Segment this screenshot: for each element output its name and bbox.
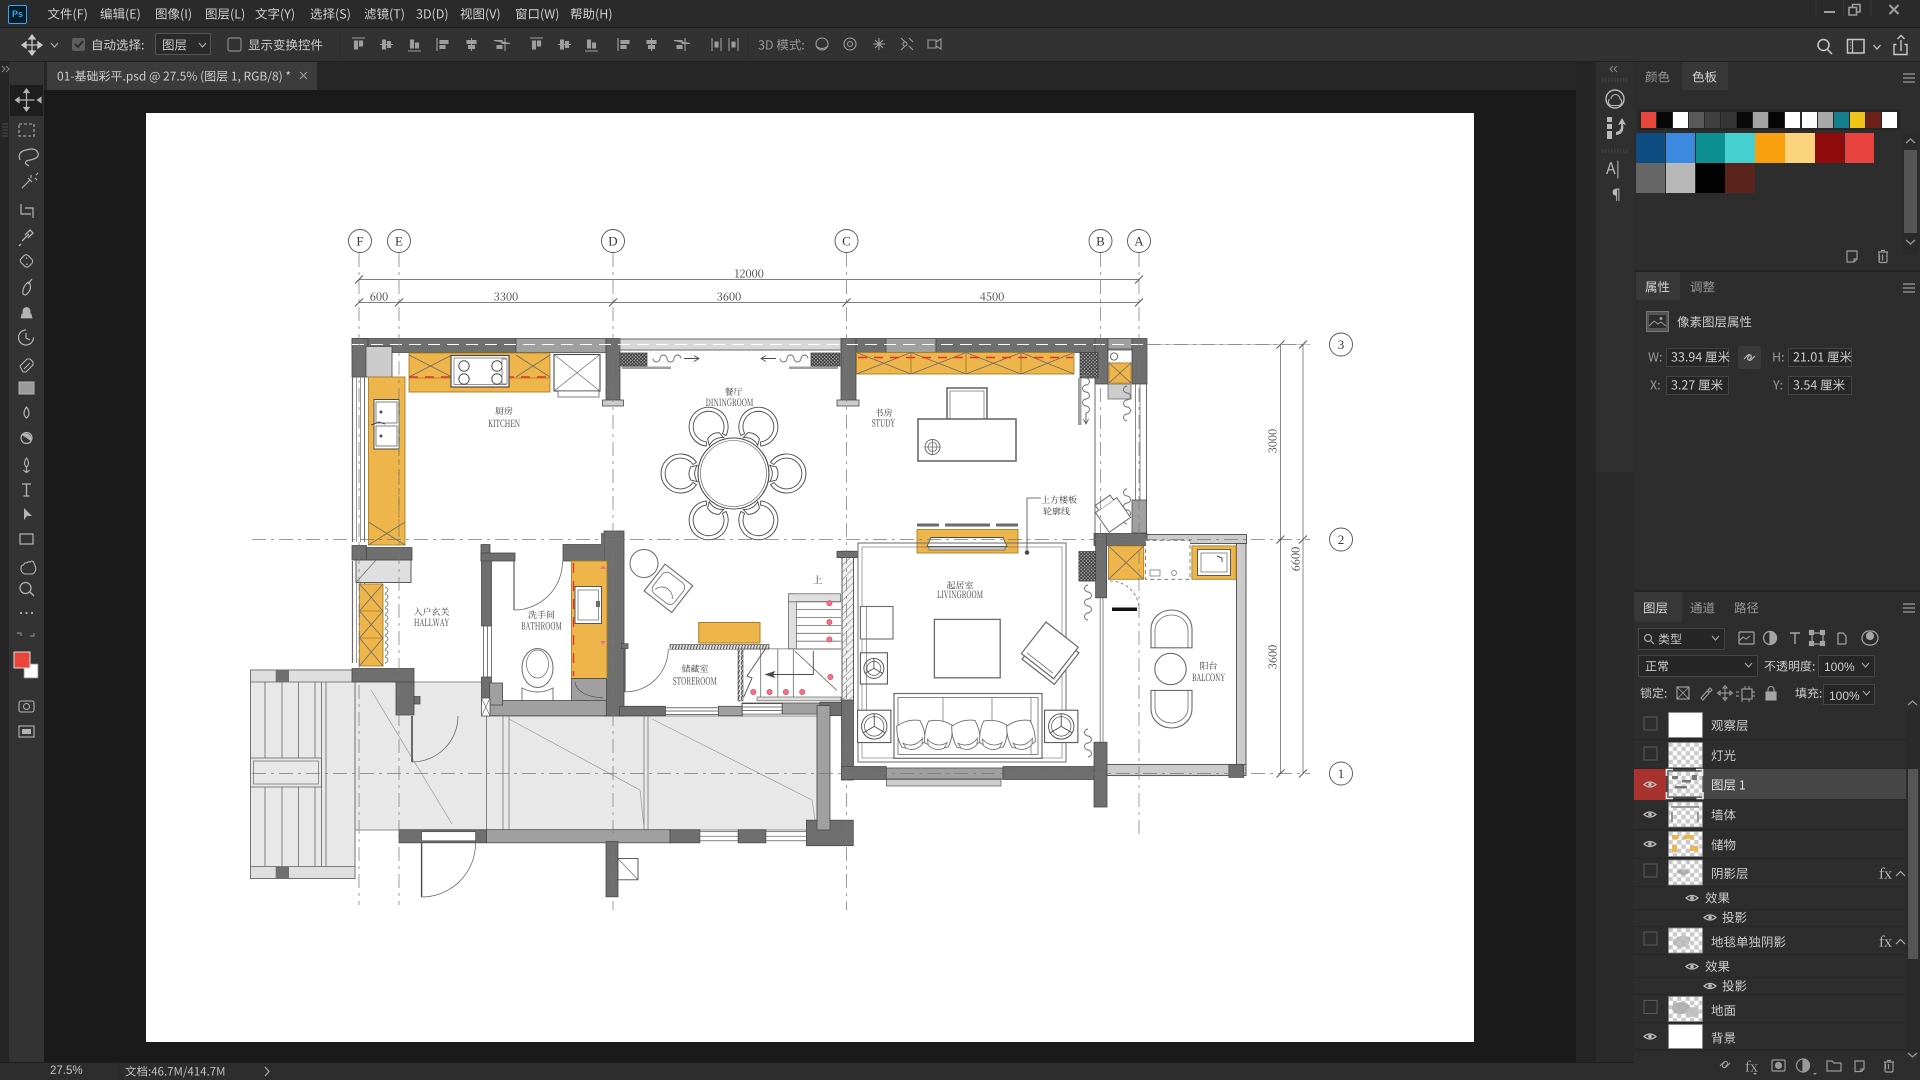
svg-text:D: D bbox=[608, 234, 617, 249]
svg-text:2: 2 bbox=[1338, 532, 1345, 547]
svg-text:1: 1 bbox=[1338, 766, 1345, 781]
svg-text:3: 3 bbox=[1338, 337, 1345, 352]
svg-text:F: F bbox=[356, 234, 363, 249]
svg-text:C: C bbox=[842, 234, 851, 249]
svg-text:A: A bbox=[1134, 234, 1144, 249]
svg-text:E: E bbox=[395, 234, 403, 249]
svg-text:B: B bbox=[1096, 234, 1105, 249]
